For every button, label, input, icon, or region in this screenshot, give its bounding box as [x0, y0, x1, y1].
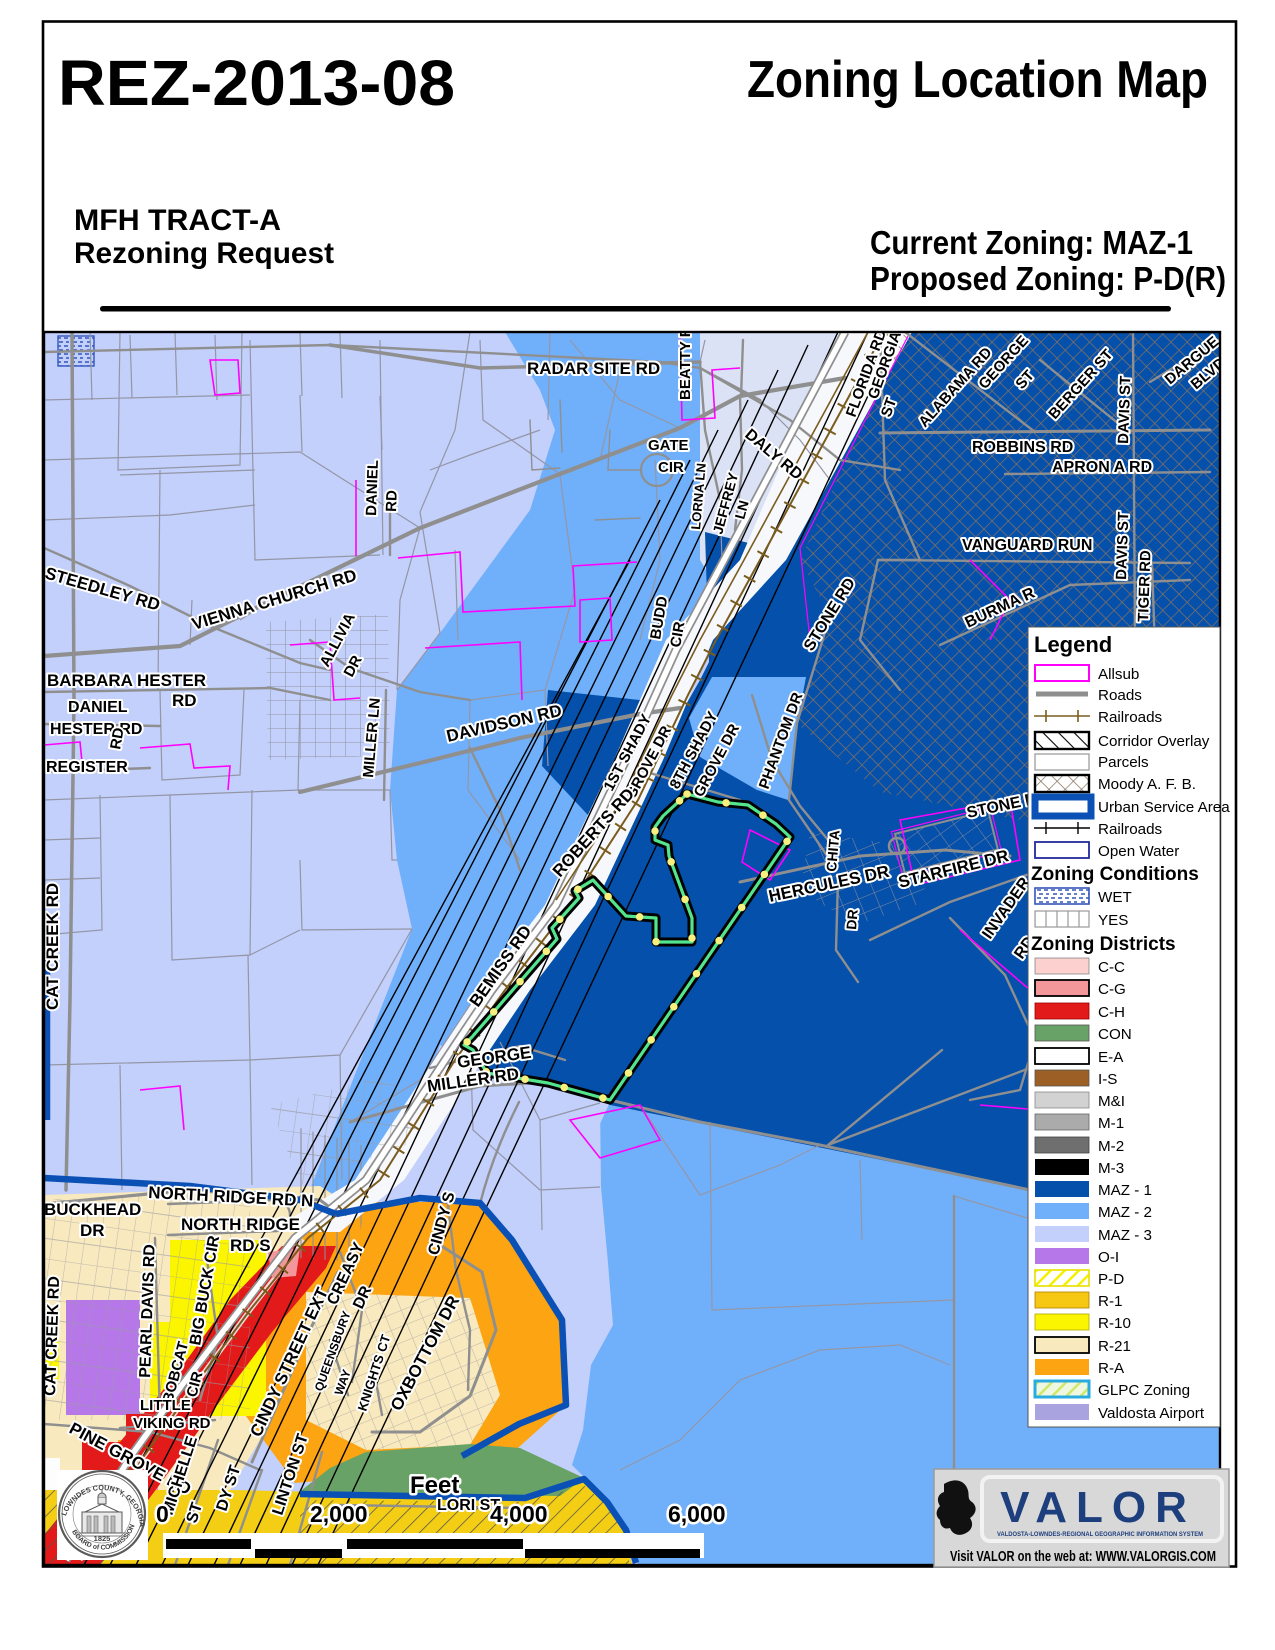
svg-text:VALOR: VALOR — [1000, 1483, 1196, 1532]
svg-text:DANIEL: DANIEL — [363, 460, 382, 516]
svg-text:0: 0 — [156, 1501, 169, 1527]
svg-text:2,000: 2,000 — [310, 1501, 368, 1527]
svg-text:Corridor Overlay: Corridor Overlay — [1098, 733, 1210, 750]
svg-text:MFH TRACT-A: MFH TRACT-A — [74, 204, 281, 237]
svg-text:Urban Service Area: Urban Service Area — [1098, 799, 1230, 816]
svg-text:REGISTER: REGISTER — [46, 759, 128, 776]
svg-text:C-G: C-G — [1098, 981, 1126, 998]
svg-text:GATE: GATE — [648, 437, 689, 454]
svg-text:RD S: RD S — [230, 1236, 271, 1255]
svg-text:Parcels: Parcels — [1098, 754, 1149, 771]
svg-text:LITTLE: LITTLE — [140, 1397, 191, 1414]
svg-text:C-C: C-C — [1098, 959, 1125, 976]
svg-text:Feet: Feet — [410, 1472, 459, 1499]
svg-text:BARBARA HESTER: BARBARA HESTER — [47, 671, 206, 690]
svg-text:VIKING RD: VIKING RD — [133, 1415, 211, 1432]
svg-text:NORTH RIDGE: NORTH RIDGE — [181, 1215, 300, 1234]
svg-text:APRON A RD: APRON A RD — [1052, 459, 1152, 476]
svg-text:I-S: I-S — [1098, 1071, 1117, 1088]
svg-text:Railroads: Railroads — [1098, 821, 1163, 838]
svg-text:Open Water: Open Water — [1098, 843, 1179, 860]
svg-text:CIR: CIR — [658, 459, 684, 476]
svg-text:Roads: Roads — [1098, 687, 1142, 704]
svg-text:Zoning Location Map: Zoning Location Map — [747, 51, 1208, 109]
svg-text:TIGER RD: TIGER RD — [1135, 550, 1154, 622]
svg-text:R-1: R-1 — [1098, 1293, 1122, 1310]
svg-text:VALDOSTA-LOWNDES-REGIONAL GEOG: VALDOSTA-LOWNDES-REGIONAL GEOGRAPHIC INF… — [997, 1531, 1203, 1538]
svg-text:O-I: O-I — [1098, 1249, 1119, 1266]
svg-text:6,000: 6,000 — [668, 1501, 726, 1527]
svg-text:MAZ - 3: MAZ - 3 — [1098, 1227, 1152, 1244]
svg-text:BUCKHEAD: BUCKHEAD — [44, 1200, 141, 1219]
svg-text:HESTER RD: HESTER RD — [50, 721, 142, 738]
svg-text:VANGUARD RUN: VANGUARD RUN — [962, 537, 1092, 554]
svg-text:R-10: R-10 — [1098, 1315, 1131, 1332]
svg-text:CAT CREEK RD: CAT CREEK RD — [43, 883, 62, 1010]
svg-text:DAVIS ST: DAVIS ST — [1113, 512, 1132, 581]
svg-text:Rezoning Request: Rezoning Request — [74, 237, 334, 270]
svg-text:Legend: Legend — [1034, 632, 1112, 657]
svg-text:R-A: R-A — [1098, 1360, 1125, 1377]
svg-text:M-1: M-1 — [1098, 1115, 1124, 1132]
svg-text:Valdosta Airport: Valdosta Airport — [1098, 1405, 1205, 1422]
svg-text:MAZ - 2: MAZ - 2 — [1098, 1204, 1152, 1221]
svg-text:YES: YES — [1098, 912, 1128, 929]
svg-text:Current Zoning: MAZ-1: Current Zoning: MAZ-1 — [870, 224, 1193, 261]
svg-text:MAZ - 1: MAZ - 1 — [1098, 1182, 1152, 1199]
svg-text:GLPC Zoning: GLPC Zoning — [1098, 1382, 1190, 1399]
svg-text:E-A: E-A — [1098, 1049, 1124, 1066]
svg-text:M-3: M-3 — [1098, 1160, 1124, 1177]
svg-text:C-H: C-H — [1098, 1004, 1125, 1021]
svg-text:RD: RD — [172, 691, 197, 710]
svg-text:WET: WET — [1098, 889, 1132, 906]
svg-text:M&I: M&I — [1098, 1093, 1125, 1110]
svg-text:CON: CON — [1098, 1026, 1132, 1043]
svg-text:DAVIS ST: DAVIS ST — [1115, 376, 1134, 445]
svg-text:REZ-2013-08: REZ-2013-08 — [58, 47, 455, 119]
svg-text:RD: RD — [383, 490, 401, 512]
svg-text:DANIEL: DANIEL — [68, 699, 128, 716]
svg-text:DR: DR — [843, 909, 861, 931]
svg-text:Railroads: Railroads — [1098, 709, 1163, 726]
svg-text:Proposed Zoning: P-D(R): Proposed Zoning: P-D(R) — [870, 260, 1226, 297]
svg-text:M-2: M-2 — [1098, 1138, 1124, 1155]
svg-text:Zoning Districts: Zoning Districts — [1031, 934, 1176, 955]
svg-text:Visit VALOR on the web at: WWW: Visit VALOR on the web at: WWW.VALORGIS.… — [950, 1549, 1216, 1565]
svg-text:1825: 1825 — [94, 1534, 111, 1543]
svg-text:Allsub: Allsub — [1098, 666, 1139, 683]
svg-text:R-21: R-21 — [1098, 1338, 1131, 1355]
svg-text:DR: DR — [80, 1221, 105, 1240]
svg-text:Zoning Conditions: Zoning Conditions — [1031, 864, 1199, 885]
svg-text:P-D: P-D — [1098, 1271, 1124, 1288]
svg-text:RADAR SITE RD: RADAR SITE RD — [527, 359, 660, 378]
svg-text:Moody A. F. B.: Moody A. F. B. — [1098, 776, 1196, 793]
svg-text:ROBBINS RD: ROBBINS RD — [972, 439, 1073, 456]
svg-text:4,000: 4,000 — [490, 1501, 548, 1527]
